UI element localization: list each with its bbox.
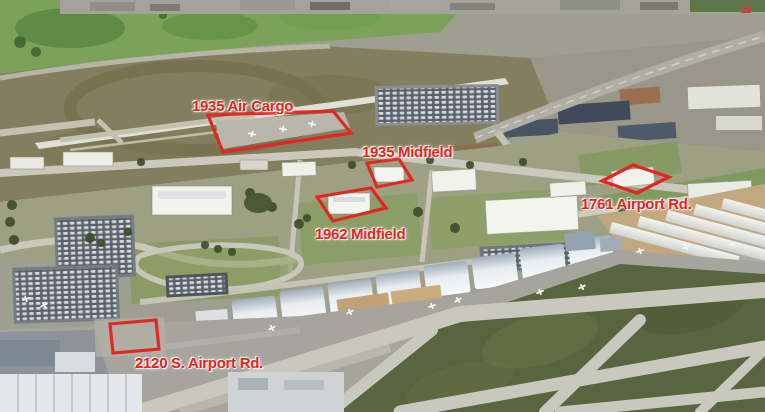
annotation-label-air-cargo: 1935 Air Cargo — [192, 98, 293, 113]
annotation-label-airport-rd-1761: 1761 Airport Rd. — [581, 196, 692, 211]
annotation-label-midfield-1962: 1962 Midfield — [315, 226, 405, 241]
airport-aerial-map: 1935 Air Cargo 1935 Midfield 1962 Midfie… — [0, 0, 765, 412]
annotation-label-midfield-1935: 1935 Midfield — [362, 144, 452, 159]
annotation-label-s-airport-rd-2120: 2120 S. Airport Rd. — [135, 355, 263, 370]
